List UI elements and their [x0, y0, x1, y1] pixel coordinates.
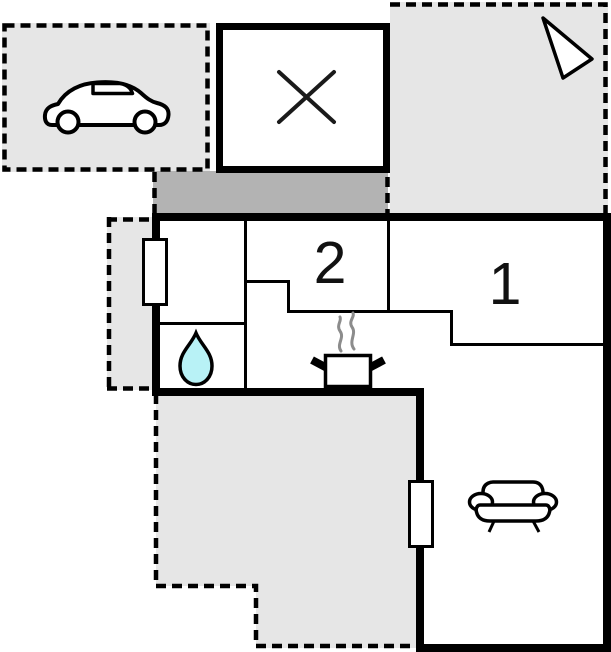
- floor-plan: 2 1: [0, 0, 611, 652]
- wall-room2-step-h: [244, 280, 290, 283]
- wall-room1-step-v: [450, 310, 453, 346]
- entry-porch-area: [153, 171, 388, 216]
- wall-bathroom-top: [159, 322, 247, 325]
- steam-icon: [339, 313, 354, 351]
- wall-bottom: [416, 644, 611, 652]
- floor-plan-drawing: [0, 0, 611, 652]
- wall-top: [152, 213, 611, 221]
- stove-pot-icon: [312, 356, 384, 387]
- wall-room1-room2: [387, 221, 390, 313]
- water-drop-icon: [180, 333, 212, 385]
- wall-room2-step-v: [287, 280, 290, 313]
- wall-room1-bottom: [450, 343, 606, 346]
- window-marker-right: [410, 482, 433, 547]
- room-1-label: 1: [470, 253, 540, 315]
- wall-bottom-left: [152, 388, 424, 396]
- patio-area: [156, 391, 420, 648]
- window-marker-left: [144, 240, 167, 305]
- wall-kitchen-top: [287, 310, 453, 313]
- room-2-label: 2: [295, 232, 365, 294]
- terrace-top-right-area: [390, 2, 608, 215]
- sofa-icon: [470, 482, 557, 532]
- wall-right: [603, 213, 611, 652]
- wall-hall-right: [244, 221, 247, 388]
